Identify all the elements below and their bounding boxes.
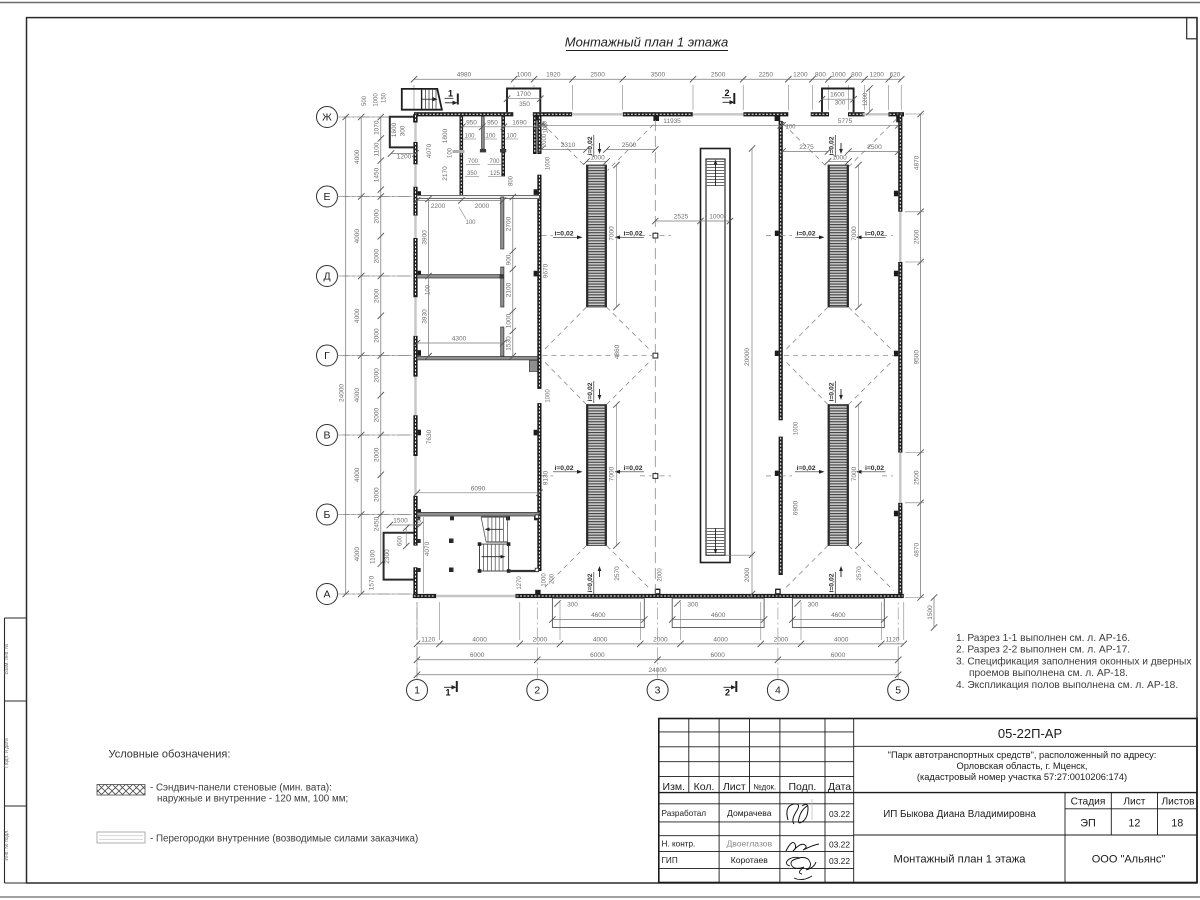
svg-text:i=0,02: i=0,02 bbox=[587, 136, 594, 155]
svg-text:4000: 4000 bbox=[834, 636, 849, 643]
svg-text:4070: 4070 bbox=[424, 541, 431, 556]
svg-text:300: 300 bbox=[567, 602, 578, 609]
svg-text:2170: 2170 bbox=[442, 166, 449, 181]
svg-text:2000: 2000 bbox=[374, 248, 381, 263]
svg-text:1600: 1600 bbox=[830, 92, 845, 99]
svg-text:7000: 7000 bbox=[609, 466, 616, 481]
svg-text:2250: 2250 bbox=[759, 72, 774, 79]
svg-text:300: 300 bbox=[687, 602, 698, 609]
svg-text:i=0,02: i=0,02 bbox=[554, 465, 573, 472]
svg-text:ЭП: ЭП bbox=[1080, 818, 1096, 830]
svg-text:4000: 4000 bbox=[472, 636, 487, 643]
svg-text:4000: 4000 bbox=[354, 308, 361, 323]
svg-text:350: 350 bbox=[467, 171, 478, 177]
svg-text:300: 300 bbox=[400, 125, 407, 136]
svg-text:i=0,02: i=0,02 bbox=[587, 382, 594, 401]
svg-text:2200: 2200 bbox=[431, 203, 446, 210]
svg-text:3. Спецификация заполнения око: 3. Спецификация заполнения оконных и две… bbox=[956, 655, 1191, 667]
svg-text:4870: 4870 bbox=[913, 155, 920, 170]
svg-text:i=0,02: i=0,02 bbox=[829, 573, 836, 592]
svg-text:4980: 4980 bbox=[457, 72, 472, 79]
svg-text:300: 300 bbox=[808, 602, 819, 609]
svg-text:1450: 1450 bbox=[374, 167, 381, 182]
svg-text:5: 5 bbox=[895, 685, 901, 697]
svg-text:24000: 24000 bbox=[649, 667, 667, 674]
svg-text:i=0,02: i=0,02 bbox=[623, 231, 642, 238]
svg-text:1000: 1000 bbox=[542, 573, 548, 587]
svg-text:7000: 7000 bbox=[851, 226, 858, 241]
svg-text:Двоеглазов: Двоеглазов bbox=[726, 839, 772, 849]
svg-text:700: 700 bbox=[489, 159, 500, 165]
svg-text:Д: Д bbox=[323, 271, 330, 283]
svg-text:4600: 4600 bbox=[711, 612, 726, 619]
svg-text:620: 620 bbox=[890, 72, 901, 79]
svg-text:2000: 2000 bbox=[374, 209, 381, 224]
svg-text:1500: 1500 bbox=[393, 517, 408, 524]
svg-text:А: А bbox=[323, 589, 330, 601]
svg-text:100: 100 bbox=[464, 133, 475, 139]
svg-text:4000: 4000 bbox=[354, 149, 361, 164]
svg-text:950: 950 bbox=[487, 120, 498, 127]
svg-text:1: 1 bbox=[445, 688, 450, 698]
svg-text:Лист: Лист bbox=[1123, 797, 1145, 808]
svg-text:2500: 2500 bbox=[711, 72, 726, 79]
svg-text:Коротаев: Коротаев bbox=[731, 855, 769, 865]
svg-text:200: 200 bbox=[550, 573, 556, 584]
svg-text:Монтажный план 1 этажа: Монтажный план 1 этажа bbox=[565, 35, 728, 50]
svg-text:1000: 1000 bbox=[546, 156, 552, 170]
svg-text:i=0,02: i=0,02 bbox=[829, 382, 836, 401]
svg-text:2570: 2570 bbox=[614, 566, 621, 581]
svg-text:Взам. инв. №: Взам. инв. № bbox=[4, 644, 10, 675]
svg-text:Дата: Дата bbox=[828, 781, 851, 793]
svg-text:3930: 3930 bbox=[421, 309, 428, 324]
svg-text:03.22: 03.22 bbox=[829, 809, 850, 819]
svg-text:1: 1 bbox=[414, 685, 420, 697]
svg-text:4300: 4300 bbox=[452, 336, 467, 343]
svg-text:2000: 2000 bbox=[374, 288, 381, 303]
svg-text:1270: 1270 bbox=[517, 576, 523, 590]
svg-text:1120: 1120 bbox=[886, 636, 900, 643]
svg-text:2: 2 bbox=[725, 688, 730, 698]
svg-text:Е: Е bbox=[323, 191, 330, 203]
svg-text:6000: 6000 bbox=[470, 652, 485, 659]
svg-text:Орловская область, г. Мценск,: Орловская область, г. Мценск, bbox=[957, 761, 1088, 771]
svg-text:4600: 4600 bbox=[831, 612, 846, 619]
svg-text:9670: 9670 bbox=[543, 263, 550, 278]
svg-text:4000: 4000 bbox=[354, 388, 361, 403]
svg-text:20000: 20000 bbox=[744, 348, 751, 366]
svg-text:1000: 1000 bbox=[831, 72, 846, 79]
svg-text:4000: 4000 bbox=[354, 229, 361, 244]
svg-text:100: 100 bbox=[417, 515, 423, 526]
svg-text:500: 500 bbox=[362, 95, 368, 106]
svg-text:2000: 2000 bbox=[475, 203, 490, 210]
svg-text:6000: 6000 bbox=[710, 652, 725, 659]
svg-text:3900: 3900 bbox=[421, 230, 428, 245]
svg-text:ИП Быкова Диана Владимировна: ИП Быкова Диана Владимировна bbox=[883, 809, 1036, 820]
svg-text:Ж: Ж bbox=[322, 112, 332, 124]
svg-text:100: 100 bbox=[448, 147, 454, 158]
svg-text:Лист: Лист bbox=[723, 781, 746, 793]
svg-text:4: 4 bbox=[775, 685, 781, 697]
svg-text:2000: 2000 bbox=[653, 636, 668, 643]
svg-text:1100: 1100 bbox=[370, 550, 377, 564]
svg-text:7000: 7000 bbox=[609, 226, 616, 241]
svg-text:i=0,02: i=0,02 bbox=[829, 136, 836, 155]
svg-text:1120: 1120 bbox=[421, 636, 435, 643]
svg-text:i=0,02: i=0,02 bbox=[587, 573, 594, 592]
svg-text:В: В bbox=[323, 430, 330, 442]
svg-text:1. Разрез 1-1 выполнен см. л.: 1. Разрез 1-1 выполнен см. л. АР-16. bbox=[956, 633, 1130, 644]
svg-text:i=0,02: i=0,02 bbox=[796, 465, 815, 472]
svg-text:100: 100 bbox=[426, 284, 432, 295]
svg-text:4600: 4600 bbox=[591, 612, 606, 619]
svg-text:2000: 2000 bbox=[744, 567, 751, 582]
svg-text:6000: 6000 bbox=[590, 652, 605, 659]
svg-text:2525: 2525 bbox=[674, 214, 689, 221]
svg-text:9130: 9130 bbox=[543, 470, 550, 485]
svg-text:Листов: Листов bbox=[1161, 797, 1194, 808]
svg-text:Изм.: Изм. bbox=[663, 781, 686, 793]
svg-text:i=0,02: i=0,02 bbox=[554, 231, 573, 238]
svg-text:4000: 4000 bbox=[593, 636, 608, 643]
svg-text:3: 3 bbox=[655, 685, 661, 697]
svg-text:4070: 4070 bbox=[426, 143, 433, 158]
svg-text:1530: 1530 bbox=[506, 336, 513, 351]
svg-text:1000: 1000 bbox=[709, 214, 724, 221]
svg-text:6090: 6090 bbox=[471, 485, 486, 492]
svg-text:4860: 4860 bbox=[614, 344, 621, 359]
svg-text:1200: 1200 bbox=[863, 92, 869, 106]
svg-text:2500: 2500 bbox=[622, 142, 637, 149]
svg-text:7630: 7630 bbox=[426, 429, 433, 444]
svg-text:03.22: 03.22 bbox=[829, 839, 850, 849]
svg-text:4000: 4000 bbox=[713, 636, 728, 643]
svg-text:№док.: №док. bbox=[753, 782, 776, 791]
svg-text:2000: 2000 bbox=[374, 407, 381, 422]
svg-text:i=0,02: i=0,02 bbox=[623, 465, 642, 472]
svg-text:800: 800 bbox=[851, 72, 862, 79]
svg-text:2000: 2000 bbox=[374, 487, 381, 502]
svg-text:2500: 2500 bbox=[913, 470, 920, 485]
svg-text:1500: 1500 bbox=[927, 605, 934, 620]
svg-text:03.22: 03.22 bbox=[829, 856, 850, 866]
svg-text:Б: Б bbox=[324, 509, 331, 521]
svg-text:1200: 1200 bbox=[397, 154, 412, 161]
svg-text:2300: 2300 bbox=[384, 549, 391, 564]
svg-text:4870: 4870 bbox=[913, 542, 920, 557]
svg-text:Кол.: Кол. bbox=[694, 781, 715, 793]
svg-text:12: 12 bbox=[1128, 818, 1140, 830]
svg-text:2000: 2000 bbox=[374, 368, 381, 383]
svg-text:2. Разрез 2-2 выполнен см. л.: 2. Разрез 2-2 выполнен см. л. АР-17. bbox=[956, 645, 1130, 656]
svg-text:18: 18 bbox=[1171, 818, 1183, 830]
svg-text:1000: 1000 bbox=[546, 389, 552, 403]
svg-text:4000: 4000 bbox=[354, 547, 361, 562]
svg-text:1570: 1570 bbox=[369, 575, 376, 590]
svg-text:7000: 7000 bbox=[851, 466, 858, 481]
svg-text:ГИП: ГИП bbox=[662, 856, 678, 865]
svg-text:9500: 9500 bbox=[913, 350, 920, 365]
svg-text:Н. контр.: Н. контр. bbox=[662, 840, 696, 849]
svg-text:1800: 1800 bbox=[442, 128, 449, 143]
svg-text:1690: 1690 bbox=[512, 120, 527, 127]
svg-text:24000: 24000 bbox=[338, 384, 345, 402]
svg-text:350: 350 bbox=[519, 101, 530, 108]
svg-text:600: 600 bbox=[398, 535, 404, 546]
svg-text:Условные обозначения:: Условные обозначения: bbox=[109, 749, 231, 761]
svg-text:i=0,02: i=0,02 bbox=[865, 231, 884, 238]
svg-text:- Сэндвич-панели стеновые (мин: - Сэндвич-панели стеновые (мин. вата): bbox=[150, 783, 332, 794]
svg-text:6000: 6000 bbox=[831, 652, 846, 659]
svg-text:2000: 2000 bbox=[658, 568, 664, 582]
svg-text:Инв. № подл.: Инв. № подл. bbox=[4, 829, 10, 860]
svg-text:Домрачева: Домрачева bbox=[727, 808, 772, 818]
svg-text:2275: 2275 bbox=[799, 144, 814, 151]
svg-text:800: 800 bbox=[509, 175, 515, 186]
svg-text:1700: 1700 bbox=[516, 91, 531, 98]
svg-text:2700: 2700 bbox=[506, 216, 513, 231]
svg-text:3500: 3500 bbox=[651, 72, 666, 79]
svg-text:"Парк автотранспортных средств: "Парк автотранспортных средств", располо… bbox=[888, 750, 1157, 760]
svg-text:1000: 1000 bbox=[506, 313, 513, 328]
svg-text:700: 700 bbox=[468, 159, 479, 165]
svg-text:1000: 1000 bbox=[374, 93, 380, 107]
svg-text:- Перегородки внутренние (возв: - Перегородки внутренние (возводимые сил… bbox=[150, 834, 418, 845]
svg-text:1000: 1000 bbox=[794, 421, 800, 435]
svg-text:2100: 2100 bbox=[506, 282, 513, 297]
svg-text:5775: 5775 bbox=[838, 118, 853, 125]
svg-text:150: 150 bbox=[382, 92, 388, 103]
svg-text:05-22П-АР: 05-22П-АР bbox=[998, 726, 1062, 741]
svg-text:2: 2 bbox=[724, 88, 729, 98]
svg-text:ООО "Альянс": ООО "Альянс" bbox=[1092, 854, 1166, 866]
svg-text:1600: 1600 bbox=[391, 122, 398, 137]
svg-text:Разработал: Разработал bbox=[662, 809, 707, 818]
svg-text:2570: 2570 bbox=[856, 566, 863, 581]
svg-text:100: 100 bbox=[506, 133, 517, 139]
svg-text:наружные и внутренние - 120 мм: наружные и внутренние - 120 мм, 100 мм; bbox=[157, 794, 348, 805]
svg-text:Монтажный план 1 этажа: Монтажный план 1 этажа bbox=[894, 854, 1027, 866]
svg-text:1070: 1070 bbox=[374, 120, 381, 135]
svg-text:2000: 2000 bbox=[533, 636, 548, 643]
svg-text:2500: 2500 bbox=[913, 229, 920, 244]
svg-text:125: 125 bbox=[490, 171, 501, 177]
svg-text:i=0,02: i=0,02 bbox=[796, 231, 815, 238]
svg-text:6900: 6900 bbox=[793, 500, 800, 515]
svg-text:2000: 2000 bbox=[374, 328, 381, 343]
svg-text:2310: 2310 bbox=[561, 142, 576, 149]
svg-text:(кадастровый номер участка 57:: (кадастровый номер участка 57:27:0010206… bbox=[917, 772, 1127, 782]
svg-text:1200: 1200 bbox=[793, 72, 808, 79]
svg-text:2500: 2500 bbox=[590, 72, 605, 79]
svg-text:Подп.: Подп. bbox=[788, 781, 816, 793]
svg-text:1920: 1920 bbox=[546, 72, 561, 79]
svg-text:2450: 2450 bbox=[374, 516, 381, 531]
svg-text:1000: 1000 bbox=[517, 72, 532, 79]
svg-text:100: 100 bbox=[785, 125, 796, 131]
svg-text:2000: 2000 bbox=[774, 636, 789, 643]
svg-text:100: 100 bbox=[485, 133, 496, 139]
svg-text:2000: 2000 bbox=[374, 447, 381, 462]
svg-text:1200: 1200 bbox=[869, 72, 884, 79]
svg-text:300: 300 bbox=[835, 100, 846, 107]
svg-text:Г: Г bbox=[324, 350, 330, 362]
svg-text:1000: 1000 bbox=[832, 154, 847, 161]
svg-text:100: 100 bbox=[465, 220, 476, 226]
svg-text:Подп. и дата: Подп. и дата bbox=[4, 738, 10, 768]
svg-text:900: 900 bbox=[506, 254, 513, 265]
svg-text:1000: 1000 bbox=[590, 154, 605, 161]
svg-text:Стадия: Стадия bbox=[1071, 797, 1106, 808]
svg-text:100: 100 bbox=[543, 120, 549, 131]
svg-text:i=0,02: i=0,02 bbox=[865, 465, 884, 472]
svg-text:11935: 11935 bbox=[663, 118, 681, 125]
svg-text:800: 800 bbox=[815, 72, 826, 79]
svg-text:4. Экспликация полов выполнена: 4. Экспликация полов выполнена см. л. АР… bbox=[956, 680, 1178, 691]
svg-text:1100: 1100 bbox=[374, 142, 381, 156]
svg-text:проемов выполнена см. л. АР-18: проемов выполнена см. л. АР-18. bbox=[969, 668, 1128, 679]
svg-text:2000: 2000 bbox=[542, 133, 548, 147]
svg-text:2500: 2500 bbox=[867, 144, 882, 151]
svg-text:4000: 4000 bbox=[354, 467, 361, 482]
svg-text:1: 1 bbox=[448, 89, 453, 99]
svg-text:2: 2 bbox=[534, 685, 540, 697]
svg-text:950: 950 bbox=[466, 120, 477, 127]
